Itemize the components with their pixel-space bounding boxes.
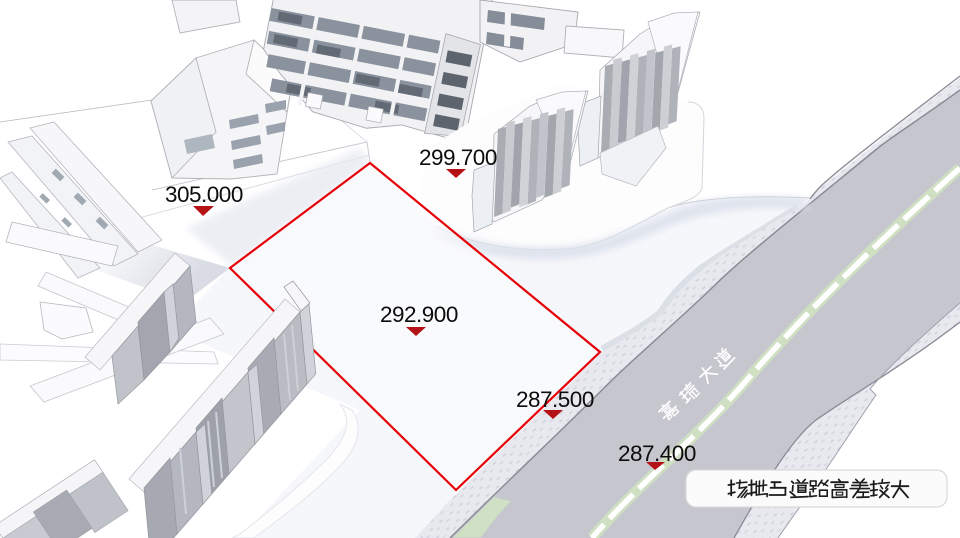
svg-text:287.500: 287.500 bbox=[516, 387, 594, 412]
svg-text:305.000: 305.000 bbox=[165, 182, 243, 207]
svg-text:292.900: 292.900 bbox=[380, 302, 458, 327]
svg-text:299.700: 299.700 bbox=[419, 145, 497, 170]
